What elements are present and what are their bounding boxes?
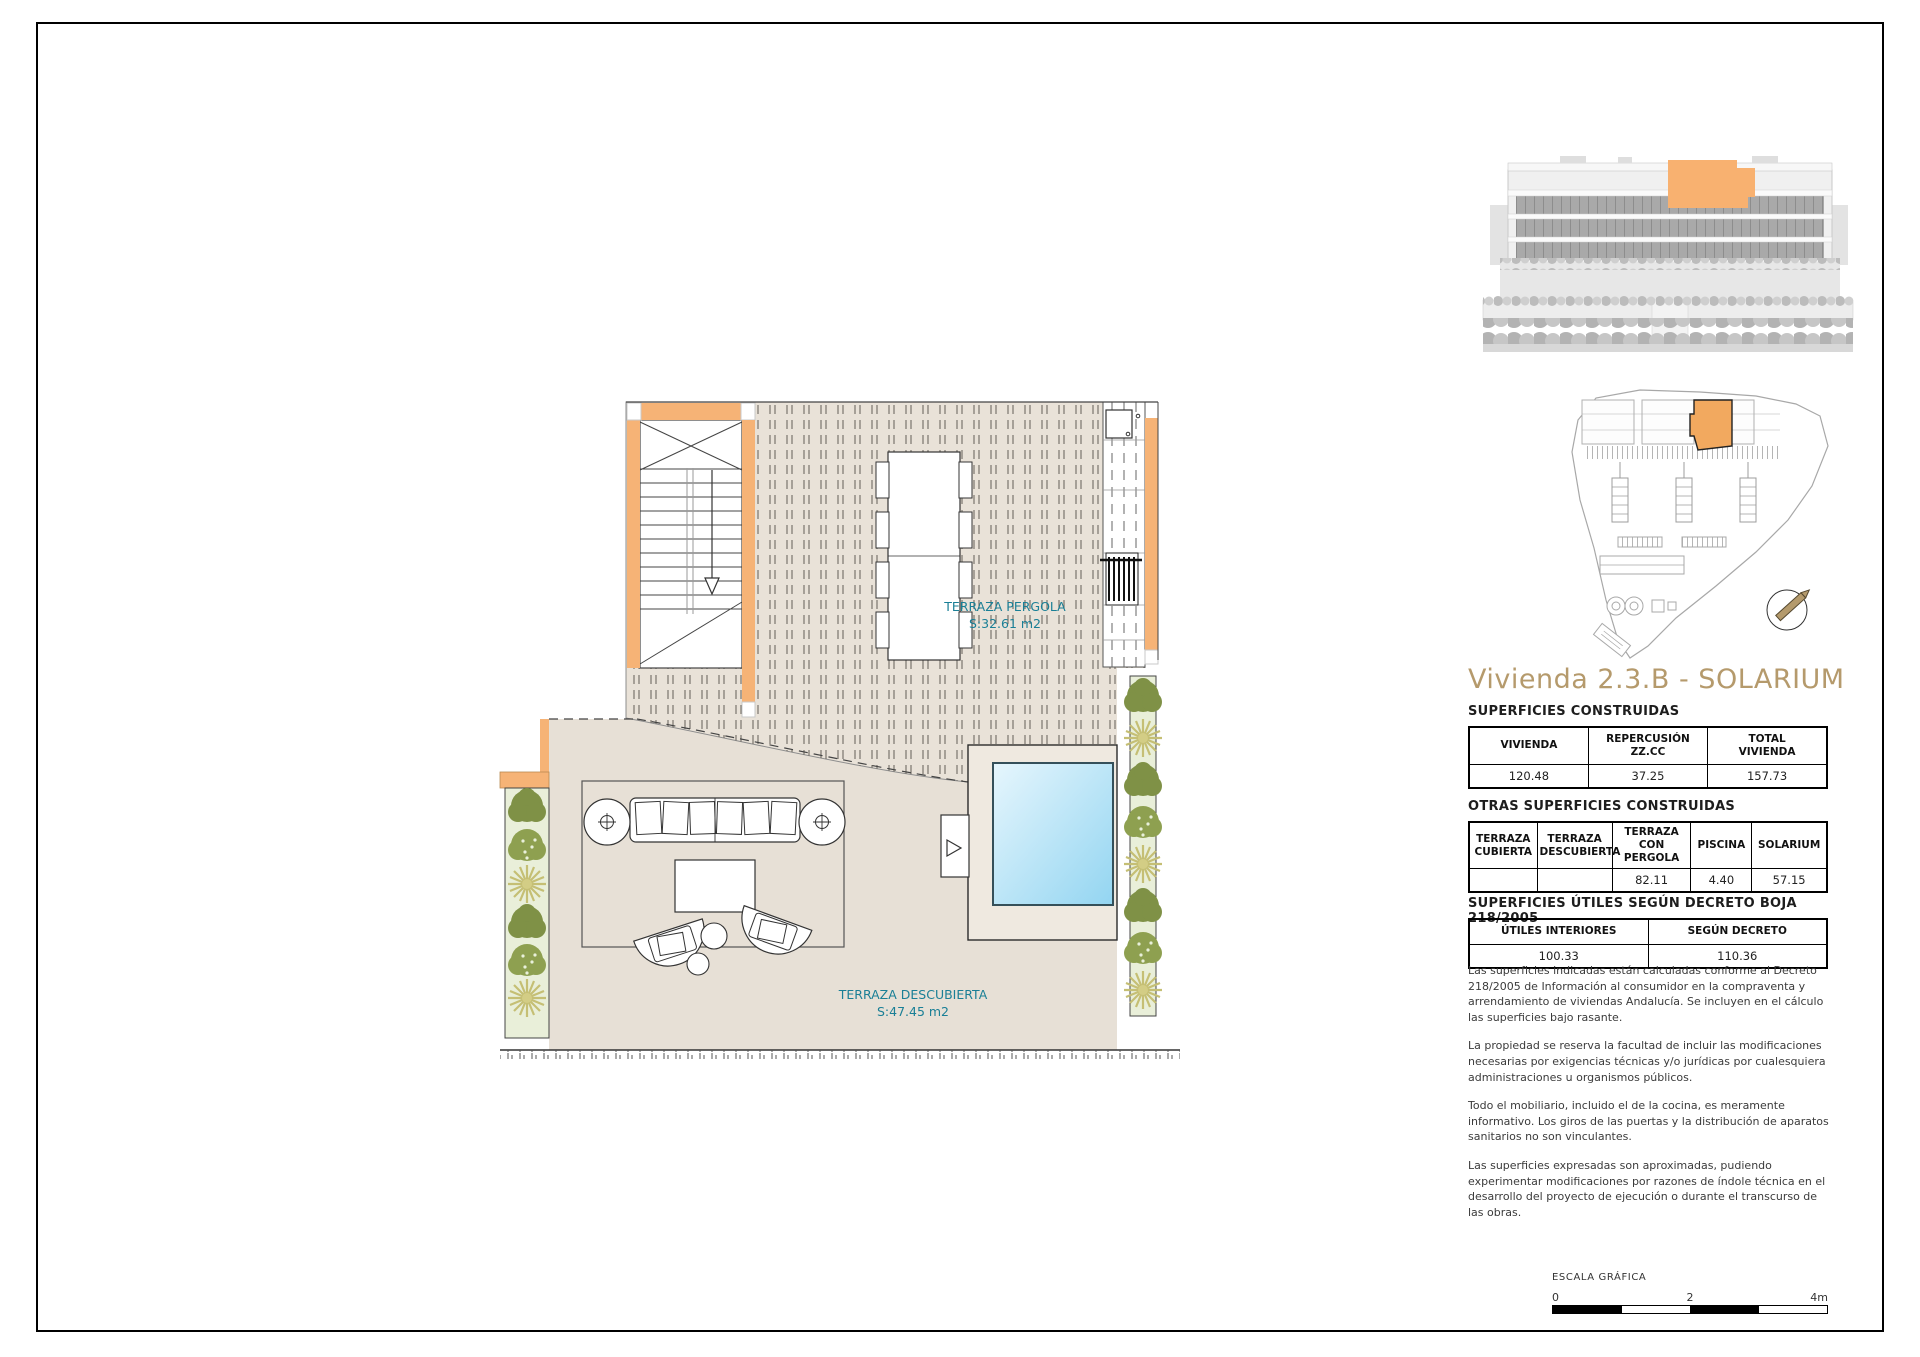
building-gardens: [1483, 258, 1853, 352]
cell-value: 120.48: [1469, 765, 1588, 789]
wall-orange: [742, 420, 755, 702]
wall-orange: [627, 420, 640, 668]
heading-construidas: SUPERFICIES CONSTRUIDAS: [1468, 704, 1840, 719]
col-header: TERRAZA CUBIERTA: [1469, 822, 1537, 869]
pergola-label: TERRAZA PERGOLA: [943, 599, 1066, 614]
note-paragraph: Las superficies expresadas son aproximad…: [1468, 1158, 1834, 1220]
table-otras: TERRAZA CUBIERTA TERRAZA DESCUBIERTA TER…: [1468, 821, 1828, 893]
cell-value: 4.40: [1691, 869, 1752, 893]
col-header: REPERCUSIÓN ZZ.CC: [1588, 727, 1707, 765]
site-buildings: [1582, 400, 1780, 459]
note-paragraph: Las superficies indicadas están calculad…: [1468, 963, 1834, 1025]
fixture-box: [1106, 410, 1132, 438]
descubierta-label: TERRAZA DESCUBIERTA: [838, 987, 988, 1002]
col-header: TERRAZA DESCUBIERTA: [1537, 822, 1612, 869]
scale-label: ESCALA GRÁFICA: [1552, 1272, 1828, 1283]
col-header: SOLARIUM: [1752, 822, 1827, 869]
pergola-area-label: S:32.61 m2: [969, 616, 1041, 631]
table-row: 82.11 4.40 57.15: [1469, 869, 1827, 893]
site-plan: [1560, 382, 1878, 668]
cell-value: 37.25: [1588, 765, 1707, 789]
building-render: [1480, 148, 1856, 354]
compass: [1767, 587, 1812, 630]
cell-value: 57.15: [1752, 869, 1827, 893]
table-utiles: ÚTILES INTERIORES SEGÚN DECRETO 100.33 1…: [1468, 918, 1828, 969]
drawing-sheet: TERRAZA PERGOLA S:32.61 m2 TERRAZA DESCU…: [0, 0, 1920, 1357]
dining-table: [876, 452, 972, 660]
side-table: [584, 799, 630, 845]
col-header: VIVIENDA: [1469, 727, 1588, 765]
col-header: TOTAL VIVIENDA: [1708, 727, 1827, 765]
descubierta-area-label: S:47.45 m2: [877, 1004, 949, 1019]
graphic-scale: ESCALA GRÁFICA 0 2 4m: [1552, 1272, 1828, 1314]
building-mass: [1490, 156, 1848, 265]
planting-strip-right: [1124, 676, 1162, 1016]
pool: [993, 763, 1113, 905]
scale-tick-4: 4m: [1810, 1291, 1828, 1304]
pouf: [701, 923, 727, 949]
floor-plan: TERRAZA PERGOLA S:32.61 m2 TERRAZA DESCU…: [480, 380, 1200, 1100]
page-title: Vivienda 2.3.B - SOLARIUM: [1468, 664, 1854, 695]
sofa: [630, 798, 800, 842]
table-construidas: VIVIENDA REPERCUSIÓN ZZ.CC TOTAL VIVIEND…: [1468, 726, 1828, 789]
coffee-table: [675, 860, 755, 912]
legal-notes: Las superficies indicadas están calculad…: [1468, 963, 1834, 1234]
radiator: [1100, 553, 1142, 605]
col-header: ÚTILES INTERIORES: [1469, 919, 1648, 945]
cell-value: [1469, 869, 1537, 893]
pool-area: [941, 745, 1117, 940]
highlighted-unit-plan: [1690, 400, 1732, 450]
site-boundary: [500, 1050, 1180, 1059]
col-header: TERRAZA CON PERGOLA: [1612, 822, 1691, 869]
scale-bar-segments: [1552, 1305, 1828, 1314]
scale-tick-0: 0: [1552, 1291, 1559, 1304]
scale-tick-2: 2: [1687, 1291, 1694, 1304]
pouf: [687, 953, 709, 975]
wall-orange: [1145, 418, 1158, 650]
cell-value: 157.73: [1708, 765, 1827, 789]
cell-value: 82.11: [1612, 869, 1691, 893]
wall-orange: [540, 719, 549, 773]
planting-strip-left: [500, 719, 549, 1038]
note-paragraph: La propiedad se reserva la facultad de i…: [1468, 1038, 1834, 1085]
col-header: PISCINA: [1691, 822, 1752, 869]
cell-value: [1537, 869, 1612, 893]
wall-orange: [641, 403, 741, 420]
col-header: SEGÚN DECRETO: [1648, 919, 1827, 945]
table-row: 120.48 37.25 157.73: [1469, 765, 1827, 789]
side-table: [799, 799, 845, 845]
note-paragraph: Todo el mobiliario, incluido el de la co…: [1468, 1098, 1834, 1145]
heading-otras: OTRAS SUPERFICIES CONSTRUIDAS: [1468, 799, 1840, 814]
scale-ticks: 0 2 4m: [1552, 1291, 1828, 1305]
